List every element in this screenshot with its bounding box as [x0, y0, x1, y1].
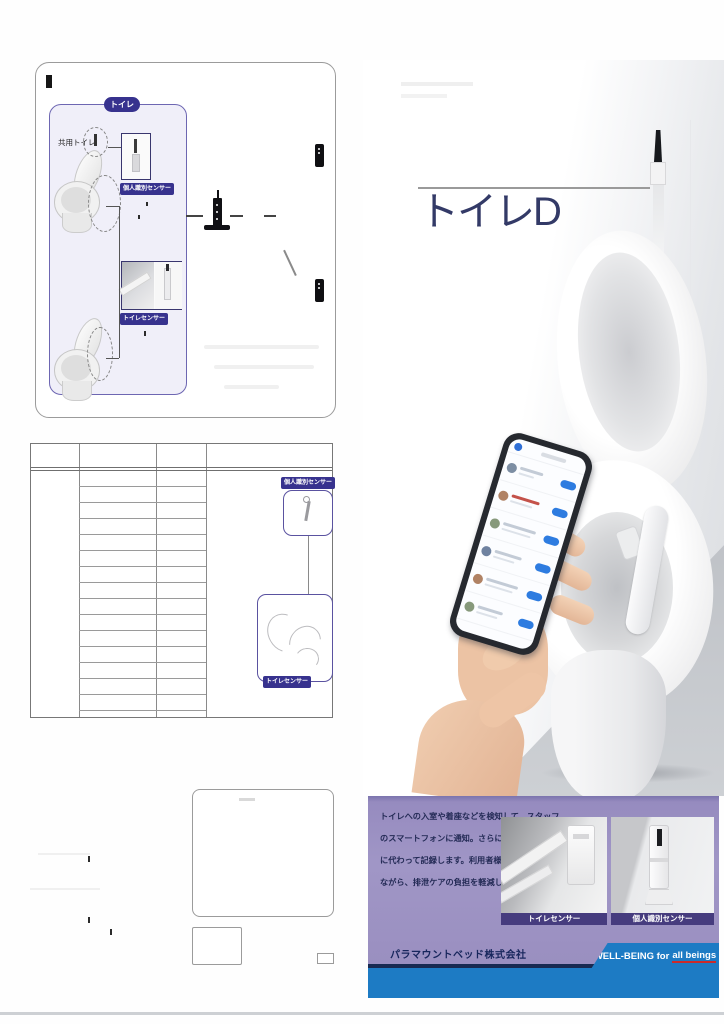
- header-divider: [31, 467, 332, 468]
- speck: [138, 215, 140, 219]
- toilet-seat-inner-shape: [61, 187, 91, 213]
- sensor-sketch-body: [132, 154, 140, 172]
- sensor-device-shape: [649, 825, 669, 889]
- avatar: [506, 462, 518, 474]
- device-slot-shape: [657, 829, 662, 846]
- action-button-shape: [526, 590, 544, 602]
- brand-tagline: WELL-BEING for: [594, 951, 669, 962]
- faint-text-bar: [239, 798, 255, 801]
- router-led: [216, 218, 218, 220]
- device-band-shape: [650, 858, 668, 862]
- brochure-photo-scene: トイレD: [363, 60, 724, 796]
- table-row: [79, 679, 206, 695]
- router-led: [216, 204, 218, 206]
- table-toilet-sensor-caption: トイレセンサー: [263, 676, 311, 688]
- toilet-base-shape: [62, 381, 92, 401]
- brochure-page: トイレD トイレへの入室や着座などを検知して、スタッフ: [363, 60, 724, 1000]
- table-row: [79, 599, 206, 615]
- table-row: [79, 695, 206, 711]
- door-sensor-stick: [94, 134, 97, 146]
- wall-receiver-icon: [315, 279, 324, 302]
- sensor-strap-shape: [118, 272, 151, 297]
- photo-caption-personal-sensor: 個人識別センサー: [611, 913, 714, 925]
- spec-table: 個人識別センサー トイレセンサー: [30, 443, 333, 718]
- router-icon: [213, 198, 222, 227]
- system-diagram-card: トイレ 共用トイレ 個人識別センサー: [35, 62, 336, 418]
- action-button-shape: [551, 507, 569, 519]
- product-photo-personal-sensor: [611, 817, 714, 913]
- connector-line: [108, 147, 121, 148]
- wall-receiver-icon: [315, 144, 324, 167]
- mounted-sensor-body: [650, 162, 666, 185]
- table-row: [79, 503, 206, 519]
- toilet-sensor-box: [257, 594, 333, 682]
- text-lines: [493, 549, 534, 569]
- signal-dash: [230, 215, 243, 217]
- toilet-sensor-caption: トイレセンサー: [120, 313, 168, 325]
- sensor-device-tip: [166, 264, 169, 271]
- faint-text-bar: [401, 94, 447, 98]
- outline-box-tiny: [317, 953, 334, 964]
- connector-line: [106, 206, 119, 207]
- router-base: [204, 225, 230, 230]
- seat-highlight-circle-2: [87, 327, 113, 381]
- signal-dash: [186, 215, 203, 217]
- brand-tagline-emphasis: all beings: [672, 950, 716, 963]
- table-row: [79, 519, 206, 535]
- speck: [88, 917, 90, 923]
- brochure-title: トイレD: [419, 192, 560, 232]
- company-name: パラマウントベッド株式会社: [390, 946, 527, 961]
- faint-text-bar: [30, 888, 100, 890]
- faint-text-bar: [204, 345, 319, 349]
- outline-box-large: [192, 789, 334, 917]
- table-row: [79, 487, 206, 503]
- avatar: [497, 489, 509, 501]
- spec-table-rows: [79, 471, 206, 711]
- personal-sensor-box: [283, 490, 333, 536]
- connector-line: [308, 536, 309, 594]
- product-info-panel: トイレへの入室や着座などを検知して、スタッフ のスマートフォンに通知。さらに排泄…: [368, 796, 719, 965]
- table-row: [79, 471, 206, 487]
- action-button-shape: [559, 479, 577, 491]
- corner-mark: [46, 75, 52, 88]
- column-divider: [206, 444, 207, 717]
- outline-box-small: [192, 927, 242, 965]
- scanned-document-page: トイレ 共用トイレ 個人識別センサー: [0, 0, 724, 1024]
- text-lines: [484, 577, 525, 597]
- avatar: [480, 545, 492, 557]
- toilet-base: [551, 650, 666, 796]
- photo-pane-left: [122, 262, 154, 309]
- table-personal-sensor-caption: 個人識別センサー: [281, 477, 335, 489]
- faint-text-bar: [401, 82, 473, 86]
- speck: [88, 856, 90, 862]
- personal-sensor-photo: [121, 133, 151, 180]
- scan-edge-line: [0, 1012, 724, 1015]
- app-title-bar: [540, 451, 566, 462]
- table-row: [79, 535, 206, 551]
- faint-text-bar: [224, 385, 279, 389]
- toilet-sensor-photo: [121, 261, 182, 310]
- toilet-base-shape: [62, 213, 92, 233]
- avatar: [513, 441, 523, 451]
- router-led: [216, 211, 218, 213]
- mounted-sensor-icon: [654, 130, 662, 162]
- table-row: [79, 647, 206, 663]
- device-label-shape: [573, 834, 589, 839]
- photo-caption-toilet-sensor: トイレセンサー: [501, 913, 607, 925]
- device-led: [318, 148, 320, 150]
- speck: [110, 929, 112, 935]
- seat-highlight-circle: [88, 175, 121, 232]
- connector-line: [106, 358, 119, 359]
- toilet-zone-pill: トイレ: [104, 97, 140, 112]
- avatar: [463, 600, 475, 612]
- sensor-device-shape: [164, 268, 171, 300]
- action-button-shape: [542, 535, 560, 547]
- speck: [144, 331, 146, 336]
- text-lines: [510, 494, 551, 514]
- personal-sensor-caption: 個人識別センサー: [120, 183, 174, 195]
- table-row: [79, 567, 206, 583]
- table-row: [79, 663, 206, 679]
- device-led: [318, 287, 320, 289]
- sensor-sketch: [304, 501, 310, 521]
- photo-pane-right: [155, 262, 182, 309]
- product-photo-toilet-sensor: [501, 817, 607, 913]
- speck: [146, 202, 148, 206]
- title-rule: [418, 187, 650, 189]
- faint-text-bar: [214, 365, 314, 369]
- text-lines: [518, 466, 559, 486]
- avatar: [472, 573, 484, 585]
- text-lines: [501, 522, 542, 542]
- avatar: [489, 517, 501, 529]
- table-row: [79, 583, 206, 599]
- connector-line: [119, 206, 120, 358]
- footer-blue-strip: [368, 968, 719, 998]
- signal-dash: [264, 215, 276, 217]
- faint-text-bar: [38, 853, 90, 855]
- action-button-shape: [534, 562, 552, 574]
- action-button-shape: [517, 618, 535, 630]
- diagonal-connector: [283, 250, 296, 276]
- device-led: [318, 283, 320, 285]
- sensor-device-shape: [567, 825, 595, 885]
- device-led: [318, 152, 320, 154]
- brand-tagline-flag: WELL-BEING for all beings: [591, 943, 719, 969]
- text-lines: [476, 605, 517, 625]
- device-foot-shape: [645, 889, 673, 905]
- table-row: [79, 615, 206, 631]
- sensor-sketch: [134, 139, 137, 153]
- table-row: [79, 631, 206, 647]
- table-row: [79, 551, 206, 567]
